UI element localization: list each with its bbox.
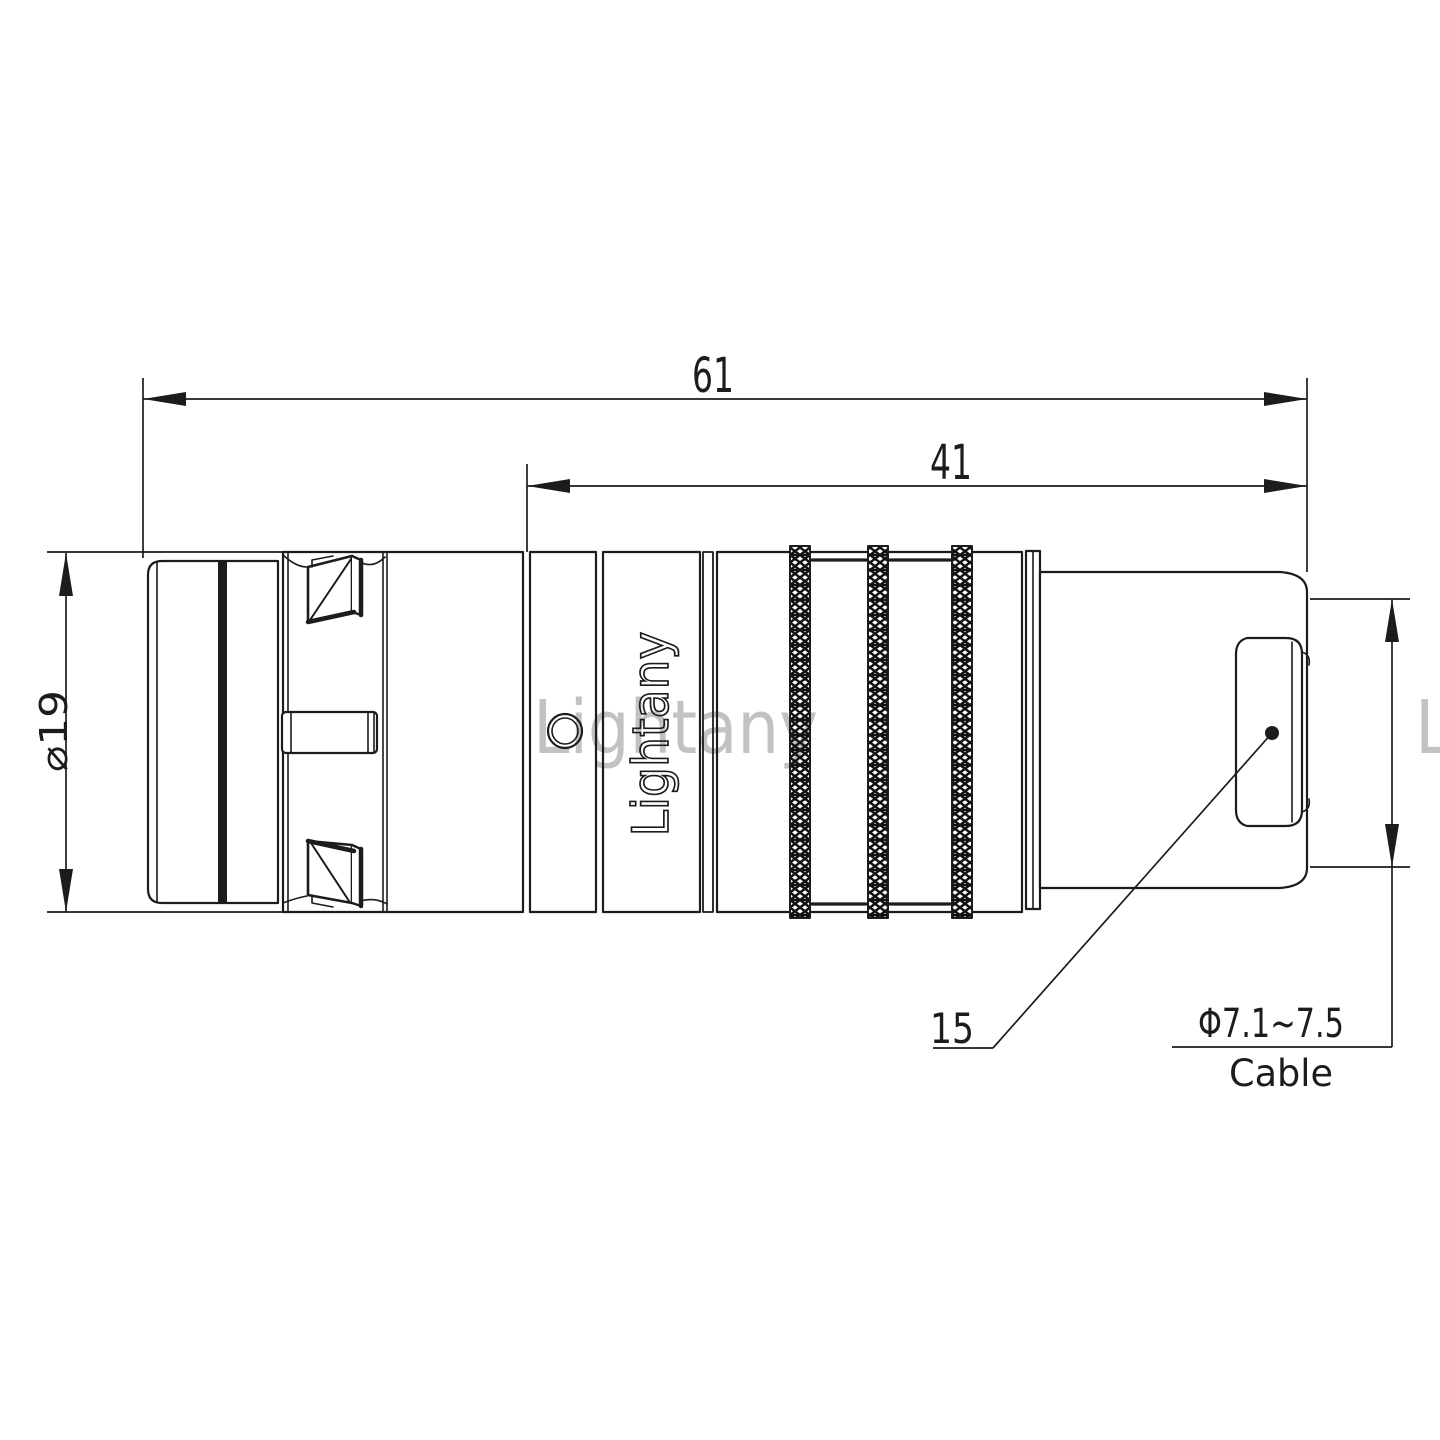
watermark-text: Lightany bbox=[533, 685, 818, 771]
dimension-front-length: 41 bbox=[527, 435, 1307, 552]
cable-diameter-value: Φ7.1~7.5 bbox=[1198, 1001, 1344, 1047]
callout-position-value: 15 bbox=[930, 1004, 974, 1053]
cable-label: Cable bbox=[1229, 1052, 1333, 1095]
rear-shell bbox=[148, 561, 278, 903]
dimension-total-length: 61 bbox=[143, 348, 1307, 572]
dim-total-length-value: 61 bbox=[692, 348, 734, 404]
collar-flange bbox=[1026, 551, 1040, 909]
technical-drawing-page: 61 41 ⌀19 Φ7.1~7.5 Cabl bbox=[0, 0, 1440, 1440]
dim-diameter-value: ⌀19 bbox=[32, 690, 76, 772]
cable-nut bbox=[1040, 572, 1309, 888]
watermark-text-partial: Lightany bbox=[1415, 685, 1440, 771]
latch-sleeve bbox=[282, 552, 523, 912]
knurl-band bbox=[868, 546, 888, 918]
dim-front-length-value: 41 bbox=[930, 435, 972, 491]
connector-dimension-drawing: 61 41 ⌀19 Φ7.1~7.5 Cabl bbox=[0, 0, 1440, 1440]
bayonet-latch-top bbox=[308, 556, 361, 622]
rear-shell-black-ring bbox=[218, 561, 227, 903]
bayonet-latch-bottom bbox=[308, 841, 361, 907]
knurl-band bbox=[952, 546, 972, 918]
latch-slot bbox=[282, 712, 377, 753]
